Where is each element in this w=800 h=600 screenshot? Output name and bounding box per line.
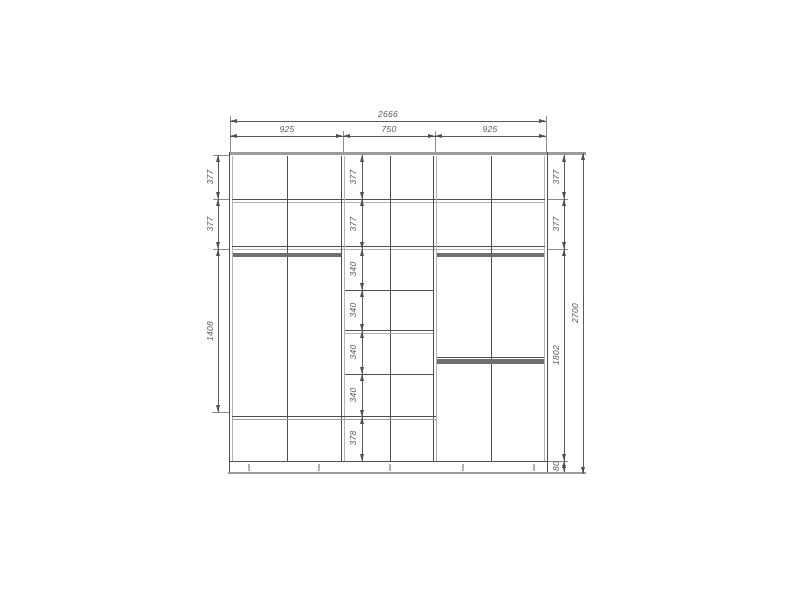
dimension-arrow xyxy=(360,410,364,417)
dimension-arrow xyxy=(539,134,546,138)
base-foot-tick xyxy=(533,464,535,471)
dimension-label: 377 xyxy=(551,216,561,231)
center-divider-right-section xyxy=(491,156,492,461)
dimension-label: 925 xyxy=(482,124,497,134)
middle-shelf-2-inner xyxy=(345,333,433,334)
base-foot-tick xyxy=(248,464,250,471)
dimension-line xyxy=(583,153,584,474)
bottom-shelf-line xyxy=(232,416,436,417)
cabinet-bottom-interior-line xyxy=(229,461,547,462)
dimension-arrow xyxy=(230,134,237,138)
dimension-arrow xyxy=(581,153,585,160)
dimension-arrow xyxy=(360,324,364,331)
dimension-arrow xyxy=(336,134,343,138)
extension-line xyxy=(546,116,547,152)
dimension-arrow xyxy=(216,249,220,256)
dimension-label: 378 xyxy=(348,430,358,445)
dimension-arrow xyxy=(539,119,546,123)
dimension-label: 377 xyxy=(348,169,358,184)
dimension-arrow xyxy=(360,283,364,290)
middle-shelf-3 xyxy=(345,374,433,375)
dimension-arrow xyxy=(360,192,364,199)
dimension-arrow xyxy=(562,155,566,162)
dimension-arrow xyxy=(562,192,566,199)
shelf-line-row1 xyxy=(232,199,545,200)
dimension-label: 340 xyxy=(348,344,358,359)
base-foot-tick xyxy=(318,464,320,471)
dimension-label: 340 xyxy=(348,302,358,317)
dimension-arrow xyxy=(360,242,364,249)
shelf-line-row1-inner xyxy=(232,202,545,203)
dimension-label: 340 xyxy=(348,387,358,402)
dimension-arrow xyxy=(428,134,435,138)
middle-shelf-1 xyxy=(345,290,433,291)
dimension-arrow xyxy=(360,374,364,381)
dimension-arrow xyxy=(360,454,364,461)
dimension-arrow xyxy=(562,465,566,472)
dimension-arrow xyxy=(360,199,364,206)
dimension-label: 925 xyxy=(279,124,294,134)
dimension-arrow xyxy=(562,199,566,206)
dimension-line xyxy=(230,136,546,137)
dimension-label: 80 xyxy=(551,461,561,471)
dimension-arrow xyxy=(562,249,566,256)
dimension-arrow xyxy=(216,192,220,199)
base-foot-tick xyxy=(462,464,464,471)
base-foot-tick xyxy=(389,464,391,471)
cabinet-base-bottom-edge xyxy=(228,472,586,474)
shelf-line-row2-inner xyxy=(232,249,545,250)
hanging-rod-left-section xyxy=(233,253,341,257)
dimension-arrow xyxy=(216,405,220,412)
dimension-arrow xyxy=(562,454,566,461)
dimension-label: 340 xyxy=(348,261,358,276)
section-divider-right-inner xyxy=(436,156,437,461)
mid-shelf-line-right-section xyxy=(437,357,544,358)
dimension-label: 750 xyxy=(381,124,396,134)
extension-line xyxy=(212,412,229,413)
dimension-arrow xyxy=(360,367,364,374)
dimension-label: 1802 xyxy=(551,345,561,365)
dimension-label: 377 xyxy=(205,216,215,231)
dimension-arrow xyxy=(343,134,350,138)
dimension-label: 377 xyxy=(348,216,358,231)
dimension-arrow xyxy=(360,331,364,338)
dimension-label: 2700 xyxy=(570,303,580,323)
dimension-arrow xyxy=(360,249,364,256)
dimension-arrow xyxy=(230,119,237,123)
dimension-label: 377 xyxy=(205,169,215,184)
shelf-line-row2 xyxy=(232,246,545,247)
dimension-arrow xyxy=(216,242,220,249)
dimension-arrow xyxy=(562,242,566,249)
dimension-arrow xyxy=(216,199,220,206)
dimension-arrow xyxy=(360,417,364,424)
shelf-with-rod-right-section xyxy=(437,359,544,364)
dimension-arrow xyxy=(360,290,364,297)
hanging-rod-right-section xyxy=(437,253,544,257)
dimension-arrow xyxy=(435,134,442,138)
dimension-label: 377 xyxy=(551,169,561,184)
cabinet-right-edge xyxy=(547,152,548,474)
cabinet-left-edge xyxy=(229,152,230,474)
bottom-shelf-line-inner xyxy=(232,419,436,420)
dimension-arrow xyxy=(360,155,364,162)
dimension-arrow xyxy=(581,467,585,474)
dimension-line xyxy=(230,121,546,122)
wardrobe-elevation-drawing: 2666925750925377377140837737734034034034… xyxy=(0,0,800,600)
dimension-arrow xyxy=(216,155,220,162)
cabinet-top-edge xyxy=(229,152,586,155)
dimension-label: 1408 xyxy=(205,321,215,341)
dimension-label: 2666 xyxy=(378,109,398,119)
middle-shelf-2 xyxy=(345,330,433,331)
